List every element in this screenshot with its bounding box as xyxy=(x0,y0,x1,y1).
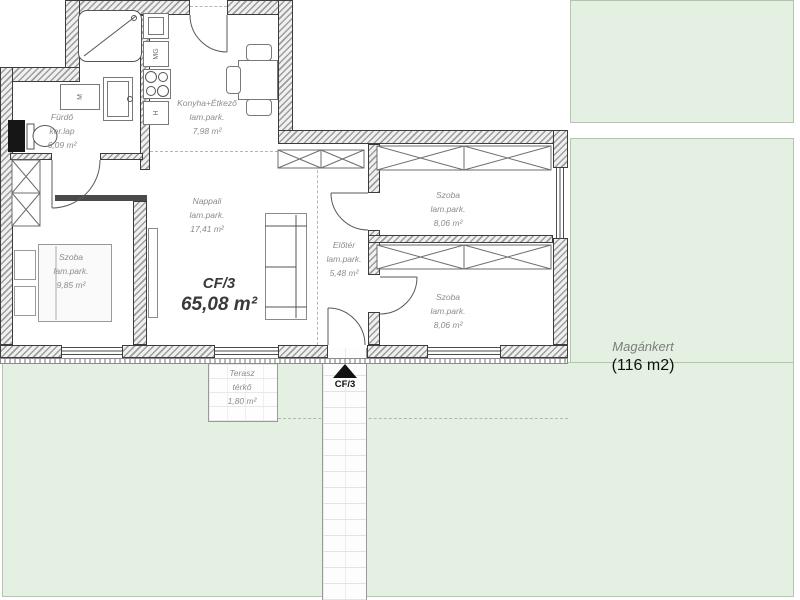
kitchen-living-dashed-boundary xyxy=(150,151,278,152)
garden-name: Magánkert xyxy=(563,338,723,355)
garden-area-bottom xyxy=(2,362,794,597)
room-finish: ker.lap xyxy=(17,124,107,138)
room-finish: lam.park. xyxy=(157,110,257,124)
wall-bottom-2 xyxy=(122,345,215,358)
room-area: 8,06 m² xyxy=(403,318,493,332)
bathroom-washbasin-bowl xyxy=(107,81,129,117)
garden-label: Magánkert (116 m2) xyxy=(563,338,723,376)
room-name: Szoba xyxy=(26,250,116,264)
wall-bottom-5 xyxy=(500,345,568,358)
room-name: Terasz xyxy=(197,366,287,380)
garden-area-right xyxy=(570,138,794,364)
entrance-arrow-label: CF/3 xyxy=(327,379,363,390)
floor-plan: M MG H xyxy=(0,0,800,600)
kitchen-sink-basin xyxy=(148,17,164,35)
wall-bathroom-bottom-right xyxy=(100,153,143,160)
room-area: 17,41 m² xyxy=(162,222,252,236)
wall-between-bedrooms xyxy=(368,235,553,243)
garden-area-top-right xyxy=(570,0,794,123)
dining-chair-left xyxy=(226,66,241,94)
unit-label: CF/3 65,08 m² xyxy=(159,274,279,316)
room-finish: lam.park. xyxy=(299,252,389,266)
wall-kitchen-right xyxy=(278,0,293,132)
room-area: 5,48 m² xyxy=(299,266,389,280)
room-name: Nappali xyxy=(162,194,252,208)
terrace-label: Terasz térkő 1,80 m² xyxy=(197,366,287,408)
wall-bottom-1 xyxy=(0,345,62,358)
room-finish: lam.park. xyxy=(26,264,116,278)
wall-left-exterior xyxy=(0,67,13,345)
room-name: Fürdő xyxy=(17,110,107,124)
room-area: 7,98 m² xyxy=(157,124,257,138)
bathroom-label: Fürdő ker.lap 6,09 m² xyxy=(17,110,107,152)
wall-living-west xyxy=(133,201,147,345)
wall-hall-right-3 xyxy=(368,312,380,345)
room-finish: lam.park. xyxy=(403,202,493,216)
room-area: 9,85 m² xyxy=(26,278,116,292)
room-area: 8,06 m² xyxy=(403,216,493,230)
dining-chair-top xyxy=(246,44,272,61)
room-name: Előtér xyxy=(299,238,389,252)
kitchen-label: Konyha+Étkező lam.park. 7,98 m² xyxy=(157,96,257,138)
room-area: 1,80 m² xyxy=(197,394,287,408)
kitchen-door-lintel-dashed xyxy=(190,6,227,7)
wall-bottom-4 xyxy=(367,345,428,358)
shower-tray xyxy=(78,10,142,62)
wall-top-long xyxy=(278,130,568,144)
wall-right-exterior-lower xyxy=(553,238,568,345)
room-area: 6,09 m² xyxy=(17,138,107,152)
room-name: Szoba xyxy=(403,290,493,304)
garden-area-value: (116 m2) xyxy=(563,355,723,376)
room-finish: térkő xyxy=(197,380,287,394)
bedroom1-label: Szoba lam.park. 9,85 m² xyxy=(26,250,116,292)
unit-area: 65,08 m² xyxy=(159,294,279,316)
room-finish: lam.park. xyxy=(162,208,252,222)
hall-label: Előtér lam.park. 5,48 m² xyxy=(299,238,389,280)
wall-bottom-3 xyxy=(278,345,328,358)
bedroom3-label: Szoba lam.park. 8,06 m² xyxy=(403,290,493,332)
wall-bathroom-bottom-left xyxy=(10,153,52,160)
tv-cabinet xyxy=(148,228,158,318)
wall-right-exterior-upper xyxy=(553,130,568,168)
dining-table xyxy=(238,60,278,100)
stove xyxy=(143,69,171,99)
room-name: Szoba xyxy=(403,188,493,202)
wall-hall-right-1 xyxy=(368,144,380,193)
living-room-label: Nappali lam.park. 17,41 m² xyxy=(162,194,252,236)
bedroom2-label: Szoba lam.park. 8,06 m² xyxy=(403,188,493,230)
room-finish: lam.park. xyxy=(403,304,493,318)
wall-bottom-insulation xyxy=(0,358,568,364)
room-name: Konyha+Étkező xyxy=(157,96,257,110)
dishwasher-label: MG xyxy=(143,41,169,67)
unit-code: CF/3 xyxy=(159,274,279,294)
